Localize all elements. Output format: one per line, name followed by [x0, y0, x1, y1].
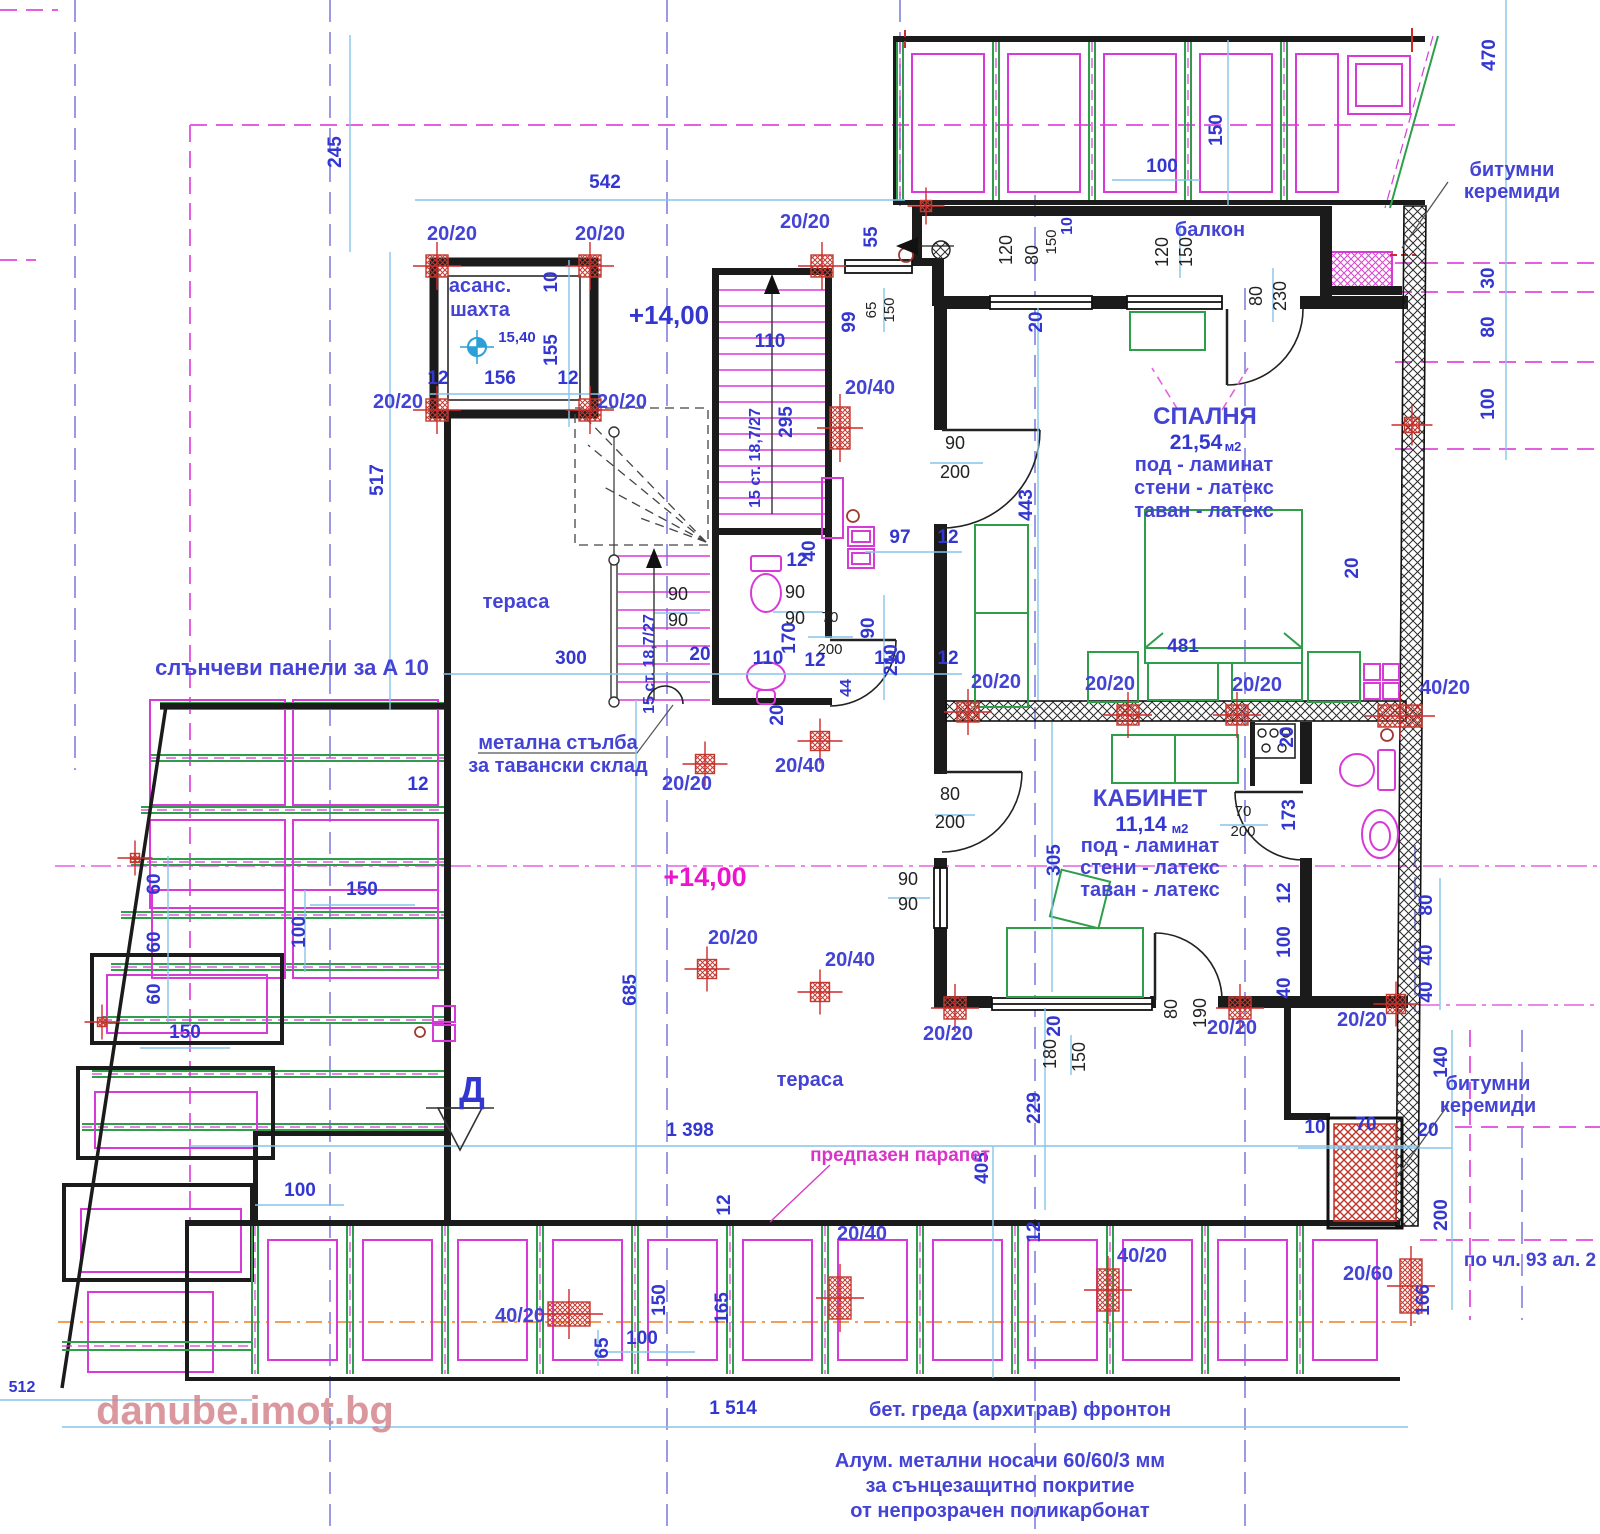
material-note: битумни: [1446, 1073, 1531, 1095]
dim-label: 12: [557, 368, 578, 389]
dim-label: 512: [9, 1379, 36, 1396]
dim-label: 180: [1040, 1039, 1060, 1069]
dim-label: 1 514: [709, 1398, 757, 1419]
dim-label: 40/20: [1117, 1245, 1167, 1267]
dim-label: 1 398: [666, 1120, 714, 1141]
dim-label: 20/20: [662, 773, 712, 795]
dim-label: 100: [1478, 388, 1499, 420]
dim-label: 80: [1416, 894, 1437, 915]
dim-label: 30: [1478, 267, 1499, 288]
dim-label: 80: [940, 784, 960, 804]
solar-panels-label: слънчеви панели за А 10: [155, 655, 429, 680]
dim-label: 99: [839, 311, 860, 332]
room-area: 21,54: [1170, 431, 1223, 454]
dim-label: 20/60: [1343, 1263, 1393, 1285]
dim-label: 90: [785, 582, 805, 602]
cabinet: [1112, 735, 1238, 783]
dim-label: 40: [1416, 981, 1437, 1002]
column-marker: [798, 970, 843, 1015]
dimension-texts: 24554220/2020/2020/205510155121561220/20…: [9, 39, 1500, 1419]
level-symbol: [460, 330, 494, 364]
ladder-note: метална стълба: [478, 732, 638, 754]
dim-label: 229: [1024, 1092, 1045, 1124]
solar-panel-field: [62, 700, 450, 1388]
dim-label: 90: [898, 894, 918, 914]
dim-label: 65: [863, 302, 880, 319]
room-finish: под - ламинат: [1135, 454, 1274, 476]
dim-label: 120: [1152, 237, 1172, 267]
stair-projection-dashed: [575, 408, 708, 545]
dim-label: 80: [1161, 999, 1181, 1019]
dim-label: 100: [1274, 926, 1295, 958]
sink: [1362, 810, 1398, 858]
dim-label: 65: [592, 1337, 613, 1359]
balcony-label: балкон: [1175, 219, 1245, 241]
section-letter: Д: [459, 1069, 485, 1110]
dim-label: 305: [1044, 844, 1065, 876]
dim-label: 110: [755, 331, 786, 352]
dim-label: 20/20: [1207, 1017, 1257, 1039]
dim-label: 40: [799, 540, 820, 561]
dim-label: 200: [1230, 823, 1255, 840]
dim-label: 150: [1043, 229, 1060, 254]
nightstand: [1308, 652, 1360, 702]
toilet: [1340, 750, 1395, 790]
roof-boxes: [64, 955, 282, 1280]
window: [845, 260, 912, 273]
alum-note: за сънцезащитно покритие: [866, 1475, 1135, 1497]
dim-label: 230: [1270, 281, 1290, 311]
dim-label: 40: [1416, 944, 1437, 965]
dim-label: 20/40: [775, 755, 825, 777]
hatched-walls: [946, 206, 1426, 1228]
dim-label: 150: [1176, 237, 1196, 267]
terrace-label: тераса: [777, 1069, 845, 1091]
door: [1227, 309, 1303, 385]
dim-label: 80: [1022, 245, 1042, 265]
floor-plan-canvas: { "watermark": "danube.imot.bg", "labels…: [0, 0, 1600, 1534]
dim-label: 90: [898, 869, 918, 889]
material-note: битумни: [1470, 159, 1555, 181]
dim-label: 20/20: [1337, 1009, 1387, 1031]
dim-label: 20: [1044, 1015, 1065, 1036]
dim-label: 155: [541, 334, 562, 366]
window: [990, 296, 1092, 309]
room-finish: стени - латекс: [1080, 857, 1220, 879]
dim-label: 40: [1274, 977, 1295, 998]
alum-note: от непрозрачен поликарбонат: [850, 1500, 1150, 1522]
dim-label: 200: [940, 462, 970, 482]
washbasin-unit: [848, 527, 874, 568]
level-value: 15,40: [498, 329, 536, 346]
dim-label: 190: [1190, 998, 1210, 1028]
dim-label: 90: [858, 617, 879, 638]
room-area-unit: м2: [1172, 821, 1189, 836]
dim-label: 20/20: [1232, 674, 1282, 696]
column-marker: [944, 689, 992, 735]
dim-label: 150: [649, 1284, 670, 1316]
door: [1155, 933, 1222, 1000]
column-marker: [798, 242, 846, 290]
roof-edge-slope: [62, 706, 166, 1388]
bedroom-office-wall: [946, 701, 1406, 721]
stair-run-label: 15 ст. 18,7/27: [641, 614, 658, 714]
chimney-flue: [1334, 1124, 1396, 1221]
dim-label: 12: [1274, 882, 1295, 903]
room-finish: таван - латекс: [1134, 500, 1274, 522]
column-marker: [535, 1289, 603, 1339]
dim-label: 100: [626, 1328, 658, 1349]
vent-symbol: [896, 237, 954, 259]
dim-label: 10: [541, 271, 562, 292]
ladder-note: за тавански склад: [468, 755, 648, 777]
dim-label: 20/40: [837, 1223, 887, 1245]
dim-label: 20/20: [575, 223, 625, 245]
dim-label: 150: [169, 1022, 201, 1043]
dim-label: 20/40: [825, 949, 875, 971]
column-marker: [1104, 692, 1152, 738]
dim-label: 20/20: [1085, 673, 1135, 695]
dim-label: 10: [1059, 217, 1076, 235]
column-markers: [85, 188, 1436, 1340]
dim-label: 40/20: [495, 1305, 545, 1327]
dim-label: 210: [881, 644, 902, 676]
beam-note: бет. греда (архитрав) фронтон: [869, 1399, 1171, 1421]
dim-label: 517: [367, 464, 388, 496]
dim-label: 80: [1478, 316, 1499, 337]
dim-label: 200: [1431, 1199, 1452, 1231]
dim-label: 20/20: [597, 391, 647, 413]
dim-label: 97: [889, 527, 910, 548]
dim-label: 90: [945, 433, 965, 453]
dim-label: 12: [407, 774, 428, 795]
dim-label: 12: [937, 527, 958, 548]
dim-label: 542: [589, 172, 621, 193]
material-note: керемиди: [1464, 181, 1560, 203]
desk: [1007, 928, 1143, 997]
dim-label: 20: [1417, 1120, 1438, 1141]
column-marker: [817, 394, 863, 462]
level-value: +14,00: [663, 862, 746, 892]
dim-label: 20: [689, 644, 710, 665]
regulation-note: по чл. 93 ал. 2: [1464, 1250, 1596, 1271]
dim-label: 150: [881, 297, 898, 322]
dim-label: 20/20: [780, 211, 830, 233]
dim-label: 100: [289, 916, 310, 948]
room-finish: стени - латекс: [1134, 477, 1274, 499]
dim-label: 120: [996, 235, 1016, 265]
watermark: danube.imot.bg: [96, 1389, 394, 1433]
elevator-shaft-label: асанс.: [449, 275, 511, 297]
dim-label: 100: [1146, 156, 1178, 177]
dim-label: 20/20: [708, 927, 758, 949]
window: [1127, 296, 1222, 309]
dim-label: 150: [1206, 114, 1227, 146]
dim-label: 20/20: [971, 671, 1021, 693]
dim-label: 20: [1277, 726, 1298, 747]
room-area: 11,14: [1115, 813, 1167, 836]
dim-label: 60: [144, 931, 165, 952]
dim-label: 166: [1413, 1284, 1434, 1316]
dim-label: 80: [1246, 286, 1266, 306]
dim-label: 481: [1167, 636, 1199, 657]
dim-label: 20/20: [923, 1023, 973, 1045]
dim-label: 70: [1355, 1114, 1376, 1135]
dim-label: 90: [668, 584, 688, 604]
toilet: [751, 556, 781, 612]
dim-label: 40/20: [1420, 677, 1470, 699]
washbasin-unit: [1364, 664, 1399, 699]
room-name: КАБИНЕТ: [1093, 785, 1208, 812]
dim-label: 12: [714, 1194, 735, 1215]
dresser: [1130, 312, 1205, 350]
column-marker: [685, 947, 730, 992]
column-marker: [118, 841, 153, 876]
dim-label: 20/20: [373, 391, 423, 413]
window: [934, 868, 947, 928]
dim-label: 12: [1024, 1221, 1045, 1242]
dim-label: 165: [712, 1292, 733, 1324]
room-finish: таван - латекс: [1080, 879, 1220, 901]
dim-label: 150: [1069, 1042, 1089, 1072]
dim-label: 170: [779, 622, 800, 654]
dim-label: 156: [484, 368, 516, 389]
dim-label: 443: [1016, 489, 1037, 521]
dim-label: 20/40: [845, 377, 895, 399]
bed: [1145, 510, 1302, 700]
dim-label: 70: [822, 609, 839, 626]
dim-label: 10: [1304, 1117, 1325, 1138]
dim-label: 200: [817, 641, 842, 658]
dim-label: 295: [776, 406, 797, 438]
dim-label: 44: [838, 679, 855, 697]
alum-note: Алум. метални носачи 60/60/3 мм: [835, 1450, 1165, 1472]
dim-label: 200: [935, 812, 965, 832]
parapet-label: предпазен парапет: [810, 1145, 990, 1166]
dim-label: 100: [284, 1180, 316, 1201]
terrace-label: тераса: [483, 591, 551, 613]
room-finish: под - ламинат: [1081, 835, 1220, 857]
room-name: СПАЛНЯ: [1153, 403, 1257, 430]
dim-label: 20: [1342, 557, 1363, 578]
dim-label: 300: [555, 648, 587, 669]
dim-label: 12: [937, 648, 958, 669]
dim-label: 60: [144, 873, 165, 894]
dim-label: 245: [325, 136, 346, 168]
elevator-shaft-label: шахта: [450, 299, 511, 321]
column-marker: [566, 242, 614, 290]
dim-label: 55: [861, 226, 882, 248]
material-note: керемиди: [1440, 1095, 1536, 1117]
column-marker: [1392, 405, 1433, 446]
dim-label: 20: [1026, 311, 1047, 332]
dim-label: 20/20: [427, 223, 477, 245]
window: [992, 998, 1152, 1010]
dim-label: 685: [620, 974, 641, 1006]
dim-label: 150: [346, 879, 378, 900]
dim-label: 60: [144, 983, 165, 1004]
level-value: +14,00: [629, 300, 709, 330]
dim-label: 470: [1479, 39, 1500, 71]
dim-label: 20: [767, 704, 788, 725]
dim-label: 12: [427, 368, 448, 389]
dim-label: 90: [668, 610, 688, 630]
stair-run-label: 15 ст. 18,7/27: [747, 408, 764, 508]
dim-label: 70: [1235, 803, 1252, 820]
floor-plan-drawing: 24554220/2020/2020/205510155121561220/20…: [0, 0, 1600, 1534]
room-area-unit: м2: [1225, 439, 1242, 454]
dim-label: 173: [1279, 799, 1300, 831]
